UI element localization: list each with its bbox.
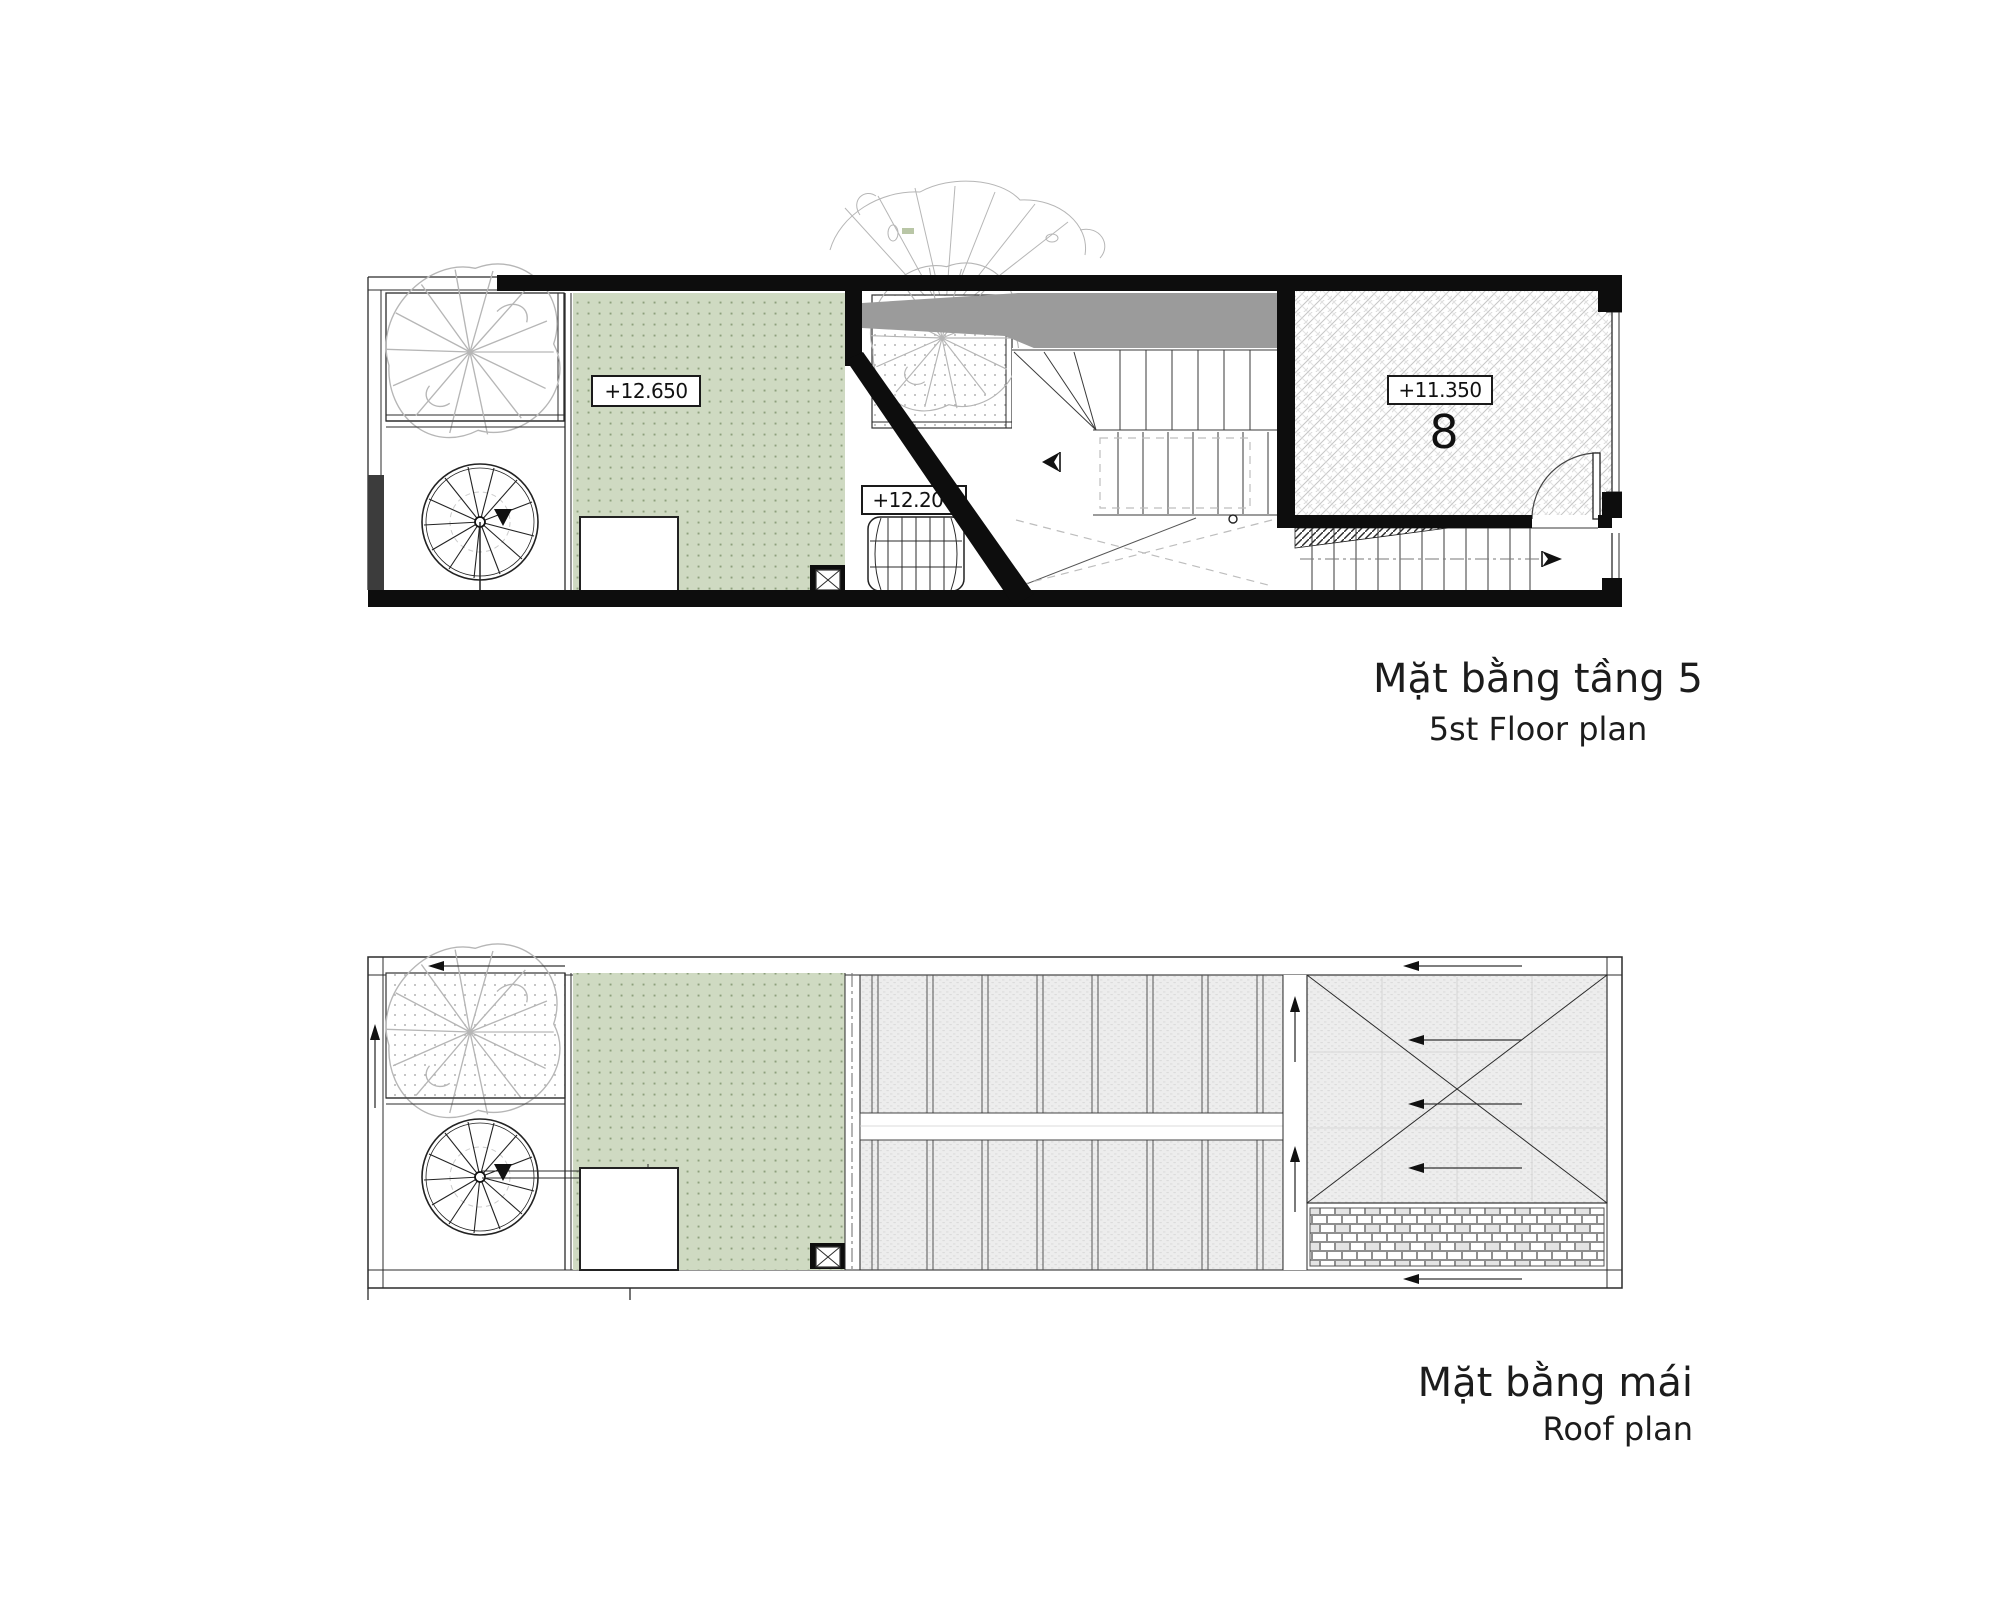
roof-title-en: Roof plan: [1543, 1410, 1693, 1448]
roof-plan: Mặt bằng mái Roof plan: [368, 944, 1693, 1448]
room-8: +11.350 8: [1295, 291, 1622, 519]
stair-hatch-wedge: [1295, 528, 1448, 548]
skylight-opening: [580, 1168, 678, 1270]
middle-stair-hall: +12.200: [862, 263, 1293, 591]
roof-sheet-area: [845, 973, 1283, 1270]
svg-text:+11.350: +11.350: [1398, 378, 1481, 402]
roof-gutter-band: [860, 1113, 1283, 1140]
parapet-filled-wall: [368, 475, 384, 590]
slope-arrow-left-strip: [428, 961, 565, 971]
slope-arrow-bottom-strip: [1403, 1274, 1522, 1284]
floor5-title-vi: Mặt bằng tầng 5: [1373, 656, 1703, 702]
room-level-label: +11.350: [1388, 376, 1492, 404]
brick-louver-band: [1310, 1208, 1604, 1266]
floor5-title-en: 5st Floor plan: [1429, 710, 1648, 748]
room-number: 8: [1429, 405, 1458, 459]
lower-stair-corridor: [1295, 528, 1619, 590]
roof-title-vi: Mặt bằng mái: [1418, 1360, 1693, 1406]
roof-left-terrace: [370, 944, 845, 1270]
planter-box: [386, 973, 565, 1098]
roof-divider: [1283, 975, 1307, 1270]
water-tank: [868, 517, 964, 591]
terrace-level-label: +12.650: [592, 376, 700, 406]
floor-plans-drawing: +12.650: [0, 0, 2000, 1606]
planter-box: [386, 293, 564, 421]
roof-x-area: [1307, 961, 1607, 1284]
stair-direction-arrow: [1042, 452, 1060, 472]
spiral-staircase: [422, 464, 538, 590]
roof-title-block: Mặt bằng mái Roof plan: [1418, 1360, 1693, 1448]
left-terrace-section: +12.650: [368, 264, 845, 591]
slope-arrow-left-wall: [370, 1024, 380, 1108]
svg-text:+12.650: +12.650: [604, 379, 687, 403]
stair-direction-arrow: [1542, 551, 1562, 567]
skylight-opening: [580, 517, 678, 591]
slope-arrow-top-strip: [1403, 961, 1522, 971]
floor5-plan: +12.650: [368, 181, 1703, 748]
floor5-title-block: Mặt bằng tầng 5 5st Floor plan: [1373, 656, 1703, 748]
